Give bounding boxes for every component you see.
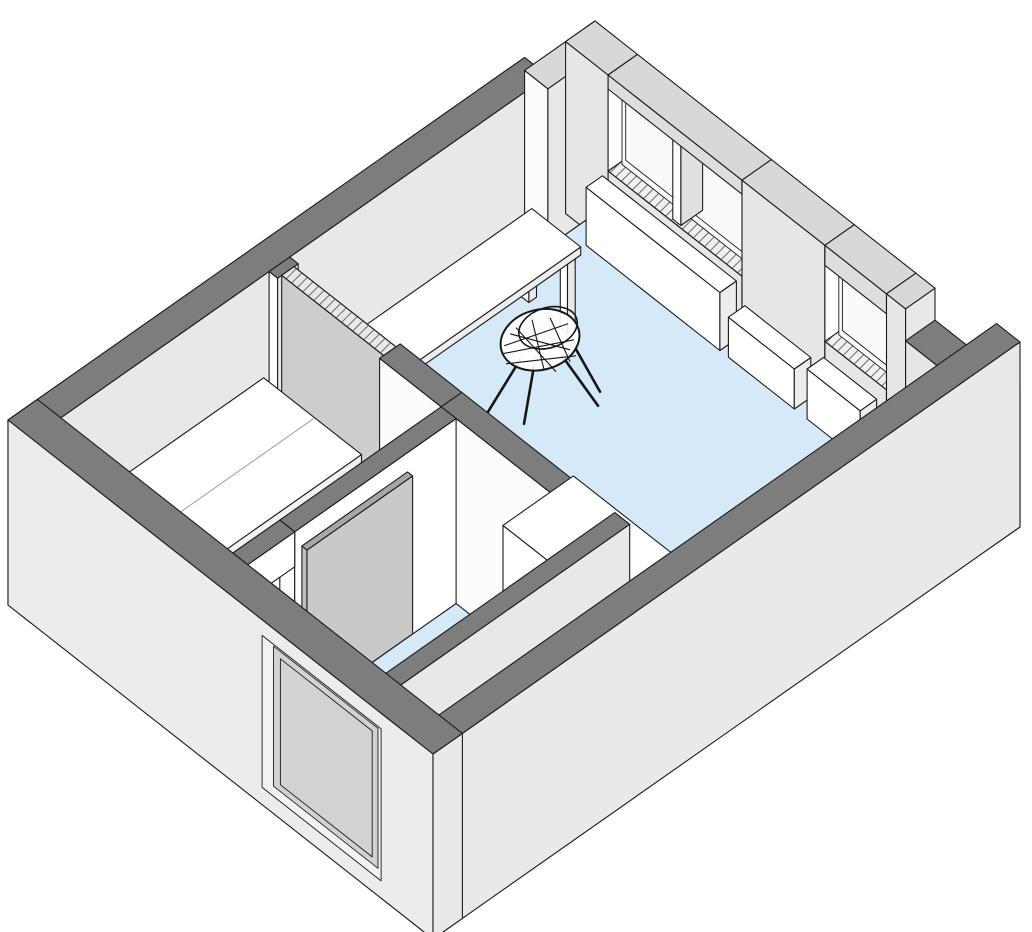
floorplan-canvas [0, 0, 1032, 932]
floorplan-layers [8, 21, 1020, 932]
floorplan-stage: Isometric cutaway floor plan of a studio… [0, 0, 1032, 932]
